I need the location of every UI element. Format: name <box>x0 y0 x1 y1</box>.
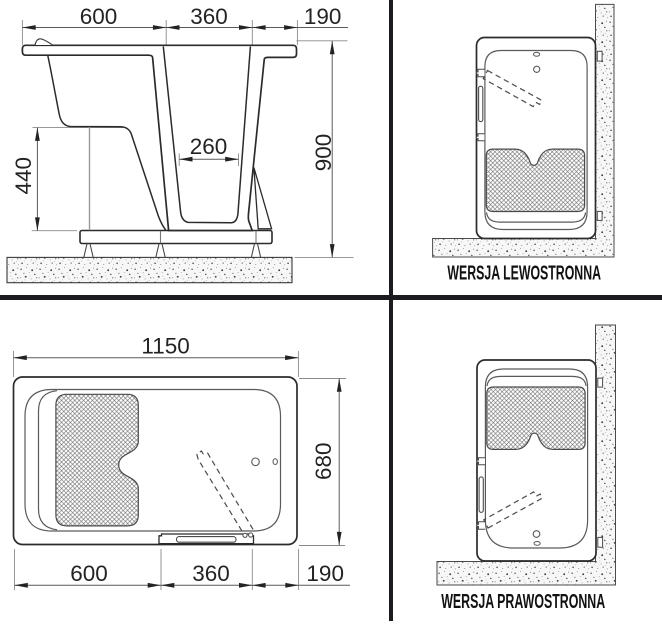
svg-text:440: 440 <box>11 157 36 195</box>
svg-text:360: 360 <box>192 561 230 586</box>
svg-text:WERSJA LEWOSTRONNA: WERSJA LEWOSTRONNA <box>447 263 601 285</box>
svg-text:1150: 1150 <box>141 333 189 358</box>
svg-text:190: 190 <box>306 561 344 586</box>
svg-text:260: 260 <box>190 134 228 159</box>
svg-text:600: 600 <box>70 561 108 586</box>
svg-text:360: 360 <box>190 4 228 29</box>
svg-text:190: 190 <box>304 4 342 29</box>
svg-text:600: 600 <box>80 4 118 29</box>
svg-text:WERSJA PRAWOSTRONNA: WERSJA PRAWOSTRONNA <box>441 591 605 613</box>
svg-text:900: 900 <box>311 134 336 172</box>
svg-text:680: 680 <box>311 442 336 480</box>
